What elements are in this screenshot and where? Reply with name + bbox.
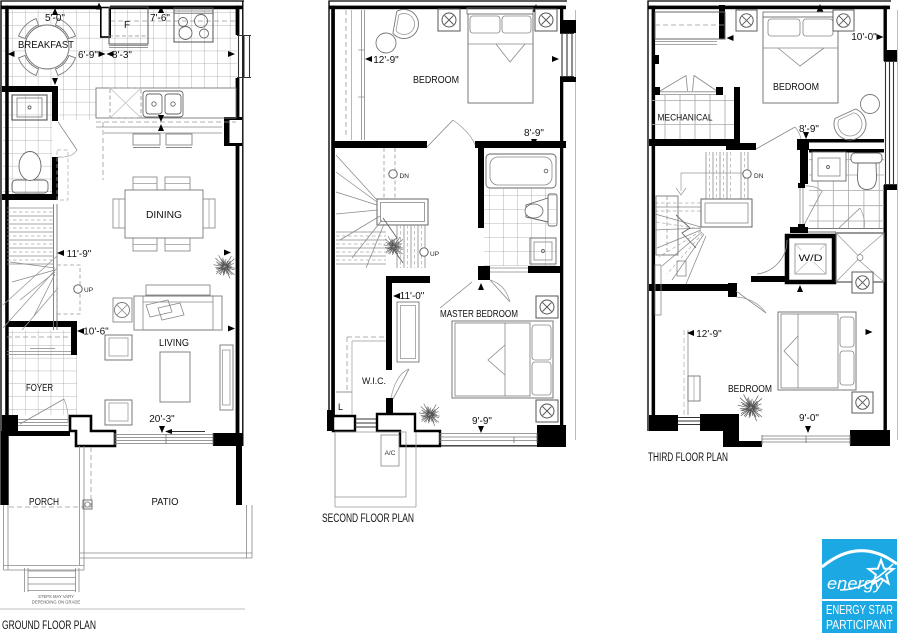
svg-text:9'-0": 9'-0"	[799, 413, 819, 424]
svg-text:12'-9": 12'-9"	[373, 55, 399, 66]
svg-text:8'-9": 8'-9"	[799, 124, 819, 135]
svg-text:PATIO: PATIO	[152, 497, 179, 508]
svg-text:DN: DN	[400, 173, 410, 180]
svg-text:L: L	[338, 402, 343, 412]
svg-text:THIRD FLOOR PLAN: THIRD FLOOR PLAN	[648, 452, 728, 464]
svg-text:8'-9": 8'-9"	[524, 128, 544, 139]
svg-text:W.I.C.: W.I.C.	[362, 376, 386, 387]
svg-text:GROUND FLOOR PLAN: GROUND FLOOR PLAN	[2, 620, 96, 632]
svg-text:BEDROOM: BEDROOM	[413, 74, 459, 86]
svg-text:8'-3": 8'-3"	[112, 50, 132, 61]
svg-text:DEPENDING ON GRADE: DEPENDING ON GRADE	[32, 600, 81, 605]
svg-text:FOYER: FOYER	[26, 382, 53, 394]
svg-text:10'-0": 10'-0"	[851, 32, 877, 43]
svg-text:MECHANICAL: MECHANICAL	[658, 113, 713, 124]
svg-text:DN: DN	[754, 173, 764, 180]
svg-text:10'-6": 10'-6"	[83, 327, 109, 338]
svg-text:F: F	[124, 20, 130, 31]
svg-text:LIVING: LIVING	[159, 337, 189, 349]
svg-text:BEDROOM: BEDROOM	[728, 383, 772, 395]
svg-text:BEDROOM: BEDROOM	[773, 81, 819, 93]
svg-text:A/C: A/C	[385, 450, 396, 457]
svg-text:11'-0": 11'-0"	[400, 291, 425, 302]
svg-text:DINING: DINING	[146, 209, 182, 221]
svg-text:MASTER BEDROOM: MASTER BEDROOM	[440, 308, 518, 320]
svg-text:W/D: W/D	[799, 253, 824, 263]
svg-text:9'-9": 9'-9"	[472, 416, 492, 427]
svg-text:BREAKFAST: BREAKFAST	[18, 39, 75, 51]
svg-text:PARTICIPANT: PARTICIPANT	[826, 618, 893, 632]
svg-text:11'-9": 11'-9"	[67, 249, 92, 260]
svg-text:UP: UP	[430, 251, 439, 258]
svg-text:7'-6": 7'-6"	[150, 13, 170, 24]
svg-text:ENERGY STAR: ENERGY STAR	[826, 603, 893, 617]
svg-text:STEPS MAY VARY: STEPS MAY VARY	[38, 594, 74, 599]
svg-text:12'-9": 12'-9"	[696, 329, 722, 340]
svg-text:UP: UP	[84, 287, 93, 294]
svg-text:20'-3": 20'-3"	[149, 414, 175, 425]
svg-text:SECOND FLOOR PLAN: SECOND FLOOR PLAN	[322, 513, 414, 525]
svg-text:PORCH: PORCH	[29, 497, 59, 508]
svg-text:6'-9": 6'-9"	[78, 50, 98, 61]
